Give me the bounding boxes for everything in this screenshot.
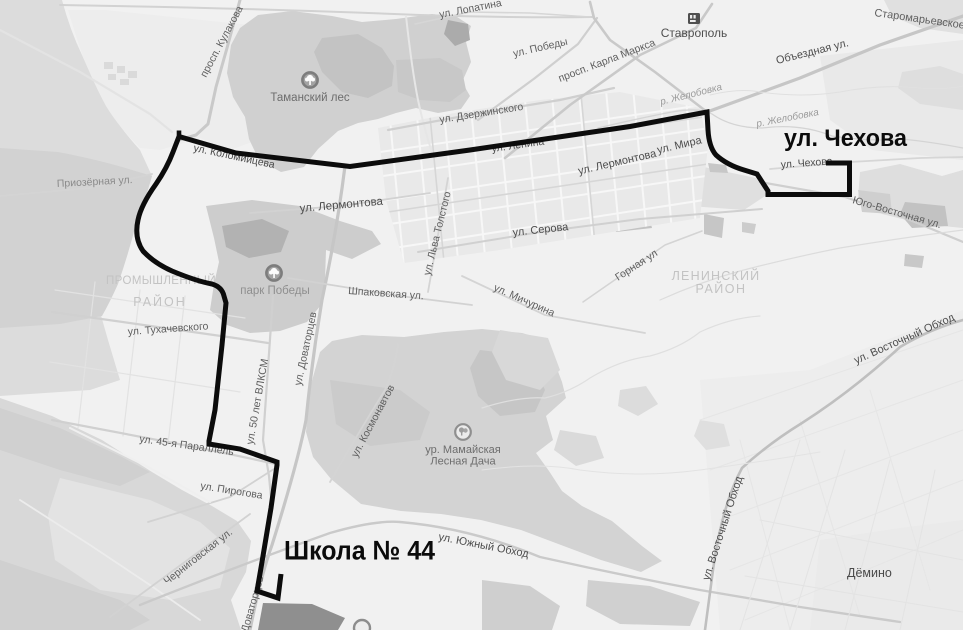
- svg-text:Таманский лес: Таманский лес: [270, 92, 349, 104]
- svg-text:ЛЕНИНСКИЙ: ЛЕНИНСКИЙ: [672, 268, 761, 283]
- svg-text:парк Победы: парк Победы: [240, 285, 309, 297]
- svg-text:Лесная Дача: Лесная Дача: [430, 456, 496, 468]
- svg-text:ур. Мамайская: ур. Мамайская: [425, 444, 501, 456]
- svg-text:РАЙОН: РАЙОН: [133, 294, 187, 309]
- svg-text:Ставрополь: Ставрополь: [661, 26, 728, 40]
- svg-text:ул. Чехова: ул. Чехова: [784, 125, 907, 152]
- svg-text:РАЙОН: РАЙОН: [695, 281, 746, 296]
- svg-text:Дёмино: Дёмино: [847, 566, 892, 580]
- svg-text:Школа № 44: Школа № 44: [284, 536, 435, 566]
